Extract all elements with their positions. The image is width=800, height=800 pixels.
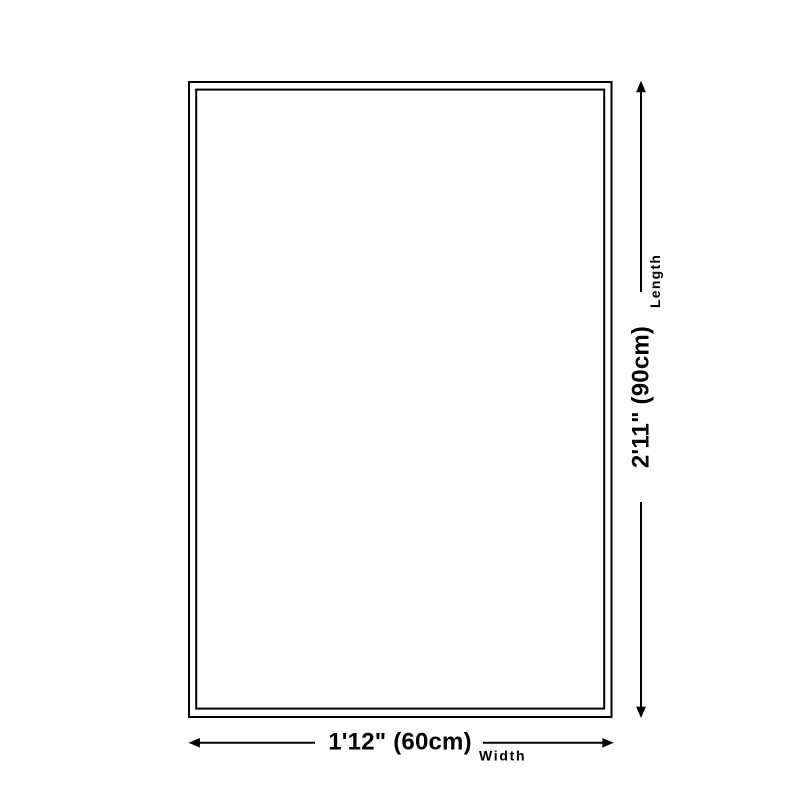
- svg-text:1'12" (60cm): 1'12" (60cm): [328, 728, 472, 755]
- svg-text:Length: Length: [647, 254, 663, 308]
- svg-text:2'11" (90cm): 2'11" (90cm): [628, 326, 655, 468]
- svg-text:Width: Width: [479, 747, 526, 763]
